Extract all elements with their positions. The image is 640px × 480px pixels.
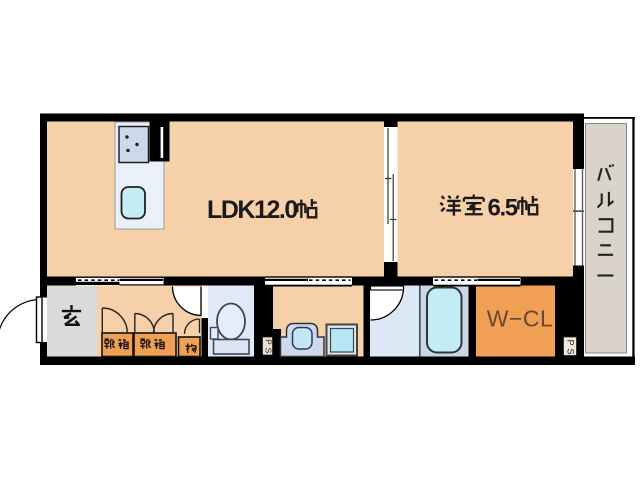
svg-text:W−CL: W−CL — [487, 306, 554, 332]
svg-text:S: S — [566, 348, 576, 354]
svg-text:P: P — [566, 339, 576, 345]
svg-text:S: S — [263, 348, 273, 354]
svg-text:P: P — [263, 339, 273, 345]
svg-text:6.5: 6.5 — [488, 195, 518, 222]
svg-text:LDK12.0: LDK12.0 — [207, 196, 297, 224]
